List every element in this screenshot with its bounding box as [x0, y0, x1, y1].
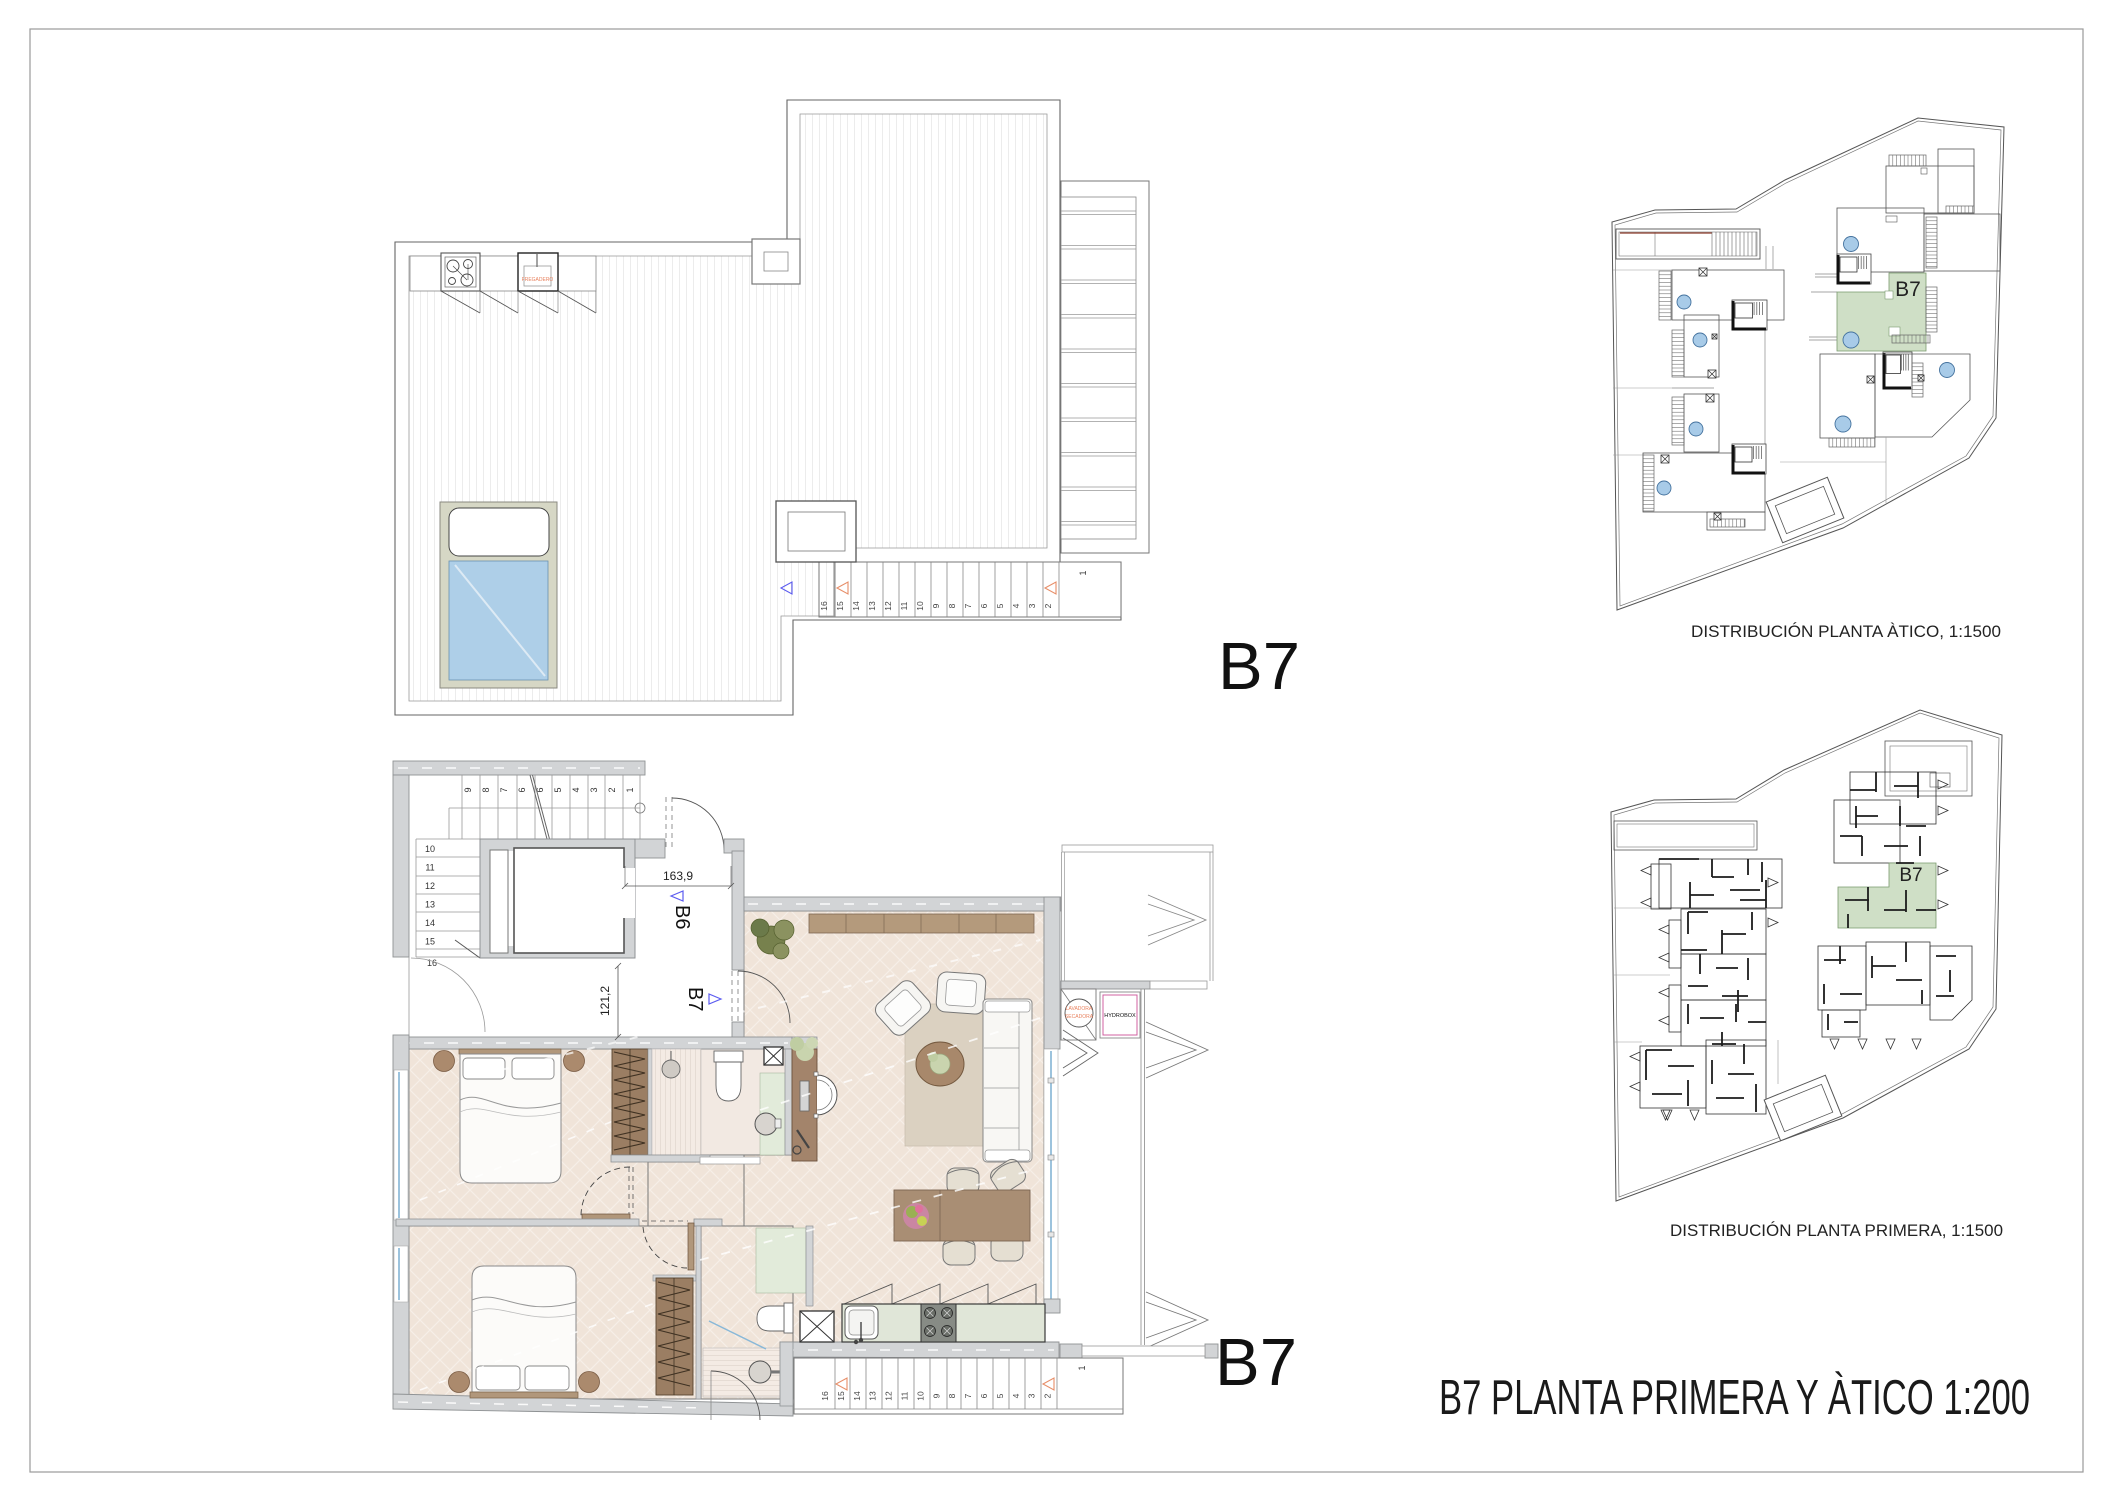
svg-text:163,9: 163,9 [663, 869, 693, 883]
svg-text:1: 1 [1077, 1365, 1087, 1370]
svg-text:2: 2 [1043, 603, 1053, 608]
svg-text:12: 12 [884, 1391, 894, 1401]
svg-text:14: 14 [851, 601, 861, 611]
svg-text:6: 6 [979, 603, 989, 608]
svg-text:13: 13 [867, 601, 877, 611]
svg-text:12: 12 [425, 881, 435, 891]
svg-text:16: 16 [427, 958, 437, 968]
svg-text:8: 8 [481, 787, 491, 792]
svg-text:DISTRIBUCIÓN PLANTA PRIMERA, 1: DISTRIBUCIÓN PLANTA PRIMERA, 1:1500 [1670, 1221, 2003, 1240]
svg-text:13: 13 [868, 1391, 878, 1401]
svg-text:9: 9 [463, 787, 473, 792]
svg-text:10: 10 [425, 844, 435, 854]
svg-text:B6: B6 [671, 905, 693, 929]
svg-text:10: 10 [915, 1391, 925, 1401]
svg-text:2: 2 [607, 787, 617, 792]
svg-text:11: 11 [425, 863, 434, 873]
svg-text:10: 10 [915, 601, 925, 611]
svg-text:8: 8 [947, 1393, 957, 1398]
svg-text:15: 15 [836, 1391, 846, 1401]
svg-text:3: 3 [589, 787, 599, 792]
svg-text:B7 PLANTA PRIMERA Y ÀTICO 1:20: B7 PLANTA PRIMERA Y ÀTICO 1:200 [1439, 1371, 2030, 1425]
svg-text:7: 7 [963, 1393, 973, 1398]
svg-text:DISTRIBUCIÓN PLANTA ÀTICO, 1:1: DISTRIBUCIÓN PLANTA ÀTICO, 1:1500 [1691, 622, 2001, 641]
svg-text:B7: B7 [1215, 1325, 1297, 1400]
svg-text:7: 7 [963, 603, 973, 608]
svg-text:SECADORA: SECADORA [1065, 1014, 1094, 1020]
svg-text:14: 14 [425, 918, 435, 928]
svg-text:13: 13 [425, 900, 435, 910]
svg-text:FREGADERO: FREGADERO [522, 277, 554, 283]
svg-text:4: 4 [1011, 1393, 1021, 1398]
svg-text:B7: B7 [684, 987, 706, 1011]
svg-text:16: 16 [820, 1391, 830, 1401]
svg-text:3: 3 [1027, 1393, 1037, 1398]
svg-text:7: 7 [499, 787, 509, 792]
svg-text:11: 11 [899, 601, 909, 610]
svg-text:15: 15 [425, 937, 435, 947]
svg-text:4: 4 [571, 787, 581, 792]
svg-text:6: 6 [979, 1393, 989, 1398]
svg-text:9: 9 [931, 1393, 941, 1398]
svg-text:5: 5 [995, 1393, 1005, 1398]
svg-text:4: 4 [1011, 603, 1021, 608]
svg-text:6: 6 [517, 787, 527, 792]
svg-text:14: 14 [852, 1391, 862, 1401]
svg-text:HYDROBOX: HYDROBOX [1104, 1013, 1136, 1019]
svg-text:9: 9 [931, 603, 941, 608]
svg-text:1: 1 [625, 787, 635, 792]
svg-text:2: 2 [1043, 1393, 1053, 1398]
svg-text:11: 11 [900, 1391, 910, 1400]
svg-text:8: 8 [947, 603, 957, 608]
svg-text:LAVADORA: LAVADORA [1066, 1006, 1093, 1012]
svg-text:1: 1 [1078, 570, 1088, 575]
svg-text:B7: B7 [1899, 865, 1922, 886]
svg-text:3: 3 [1027, 603, 1037, 608]
svg-text:B7: B7 [1218, 629, 1300, 704]
svg-text:15: 15 [835, 601, 845, 611]
svg-text:16: 16 [819, 601, 829, 611]
svg-text:121,2: 121,2 [598, 986, 612, 1016]
svg-text:12: 12 [883, 601, 893, 611]
svg-text:B7: B7 [1895, 278, 1921, 301]
svg-text:5: 5 [995, 603, 1005, 608]
svg-text:5: 5 [553, 787, 563, 792]
